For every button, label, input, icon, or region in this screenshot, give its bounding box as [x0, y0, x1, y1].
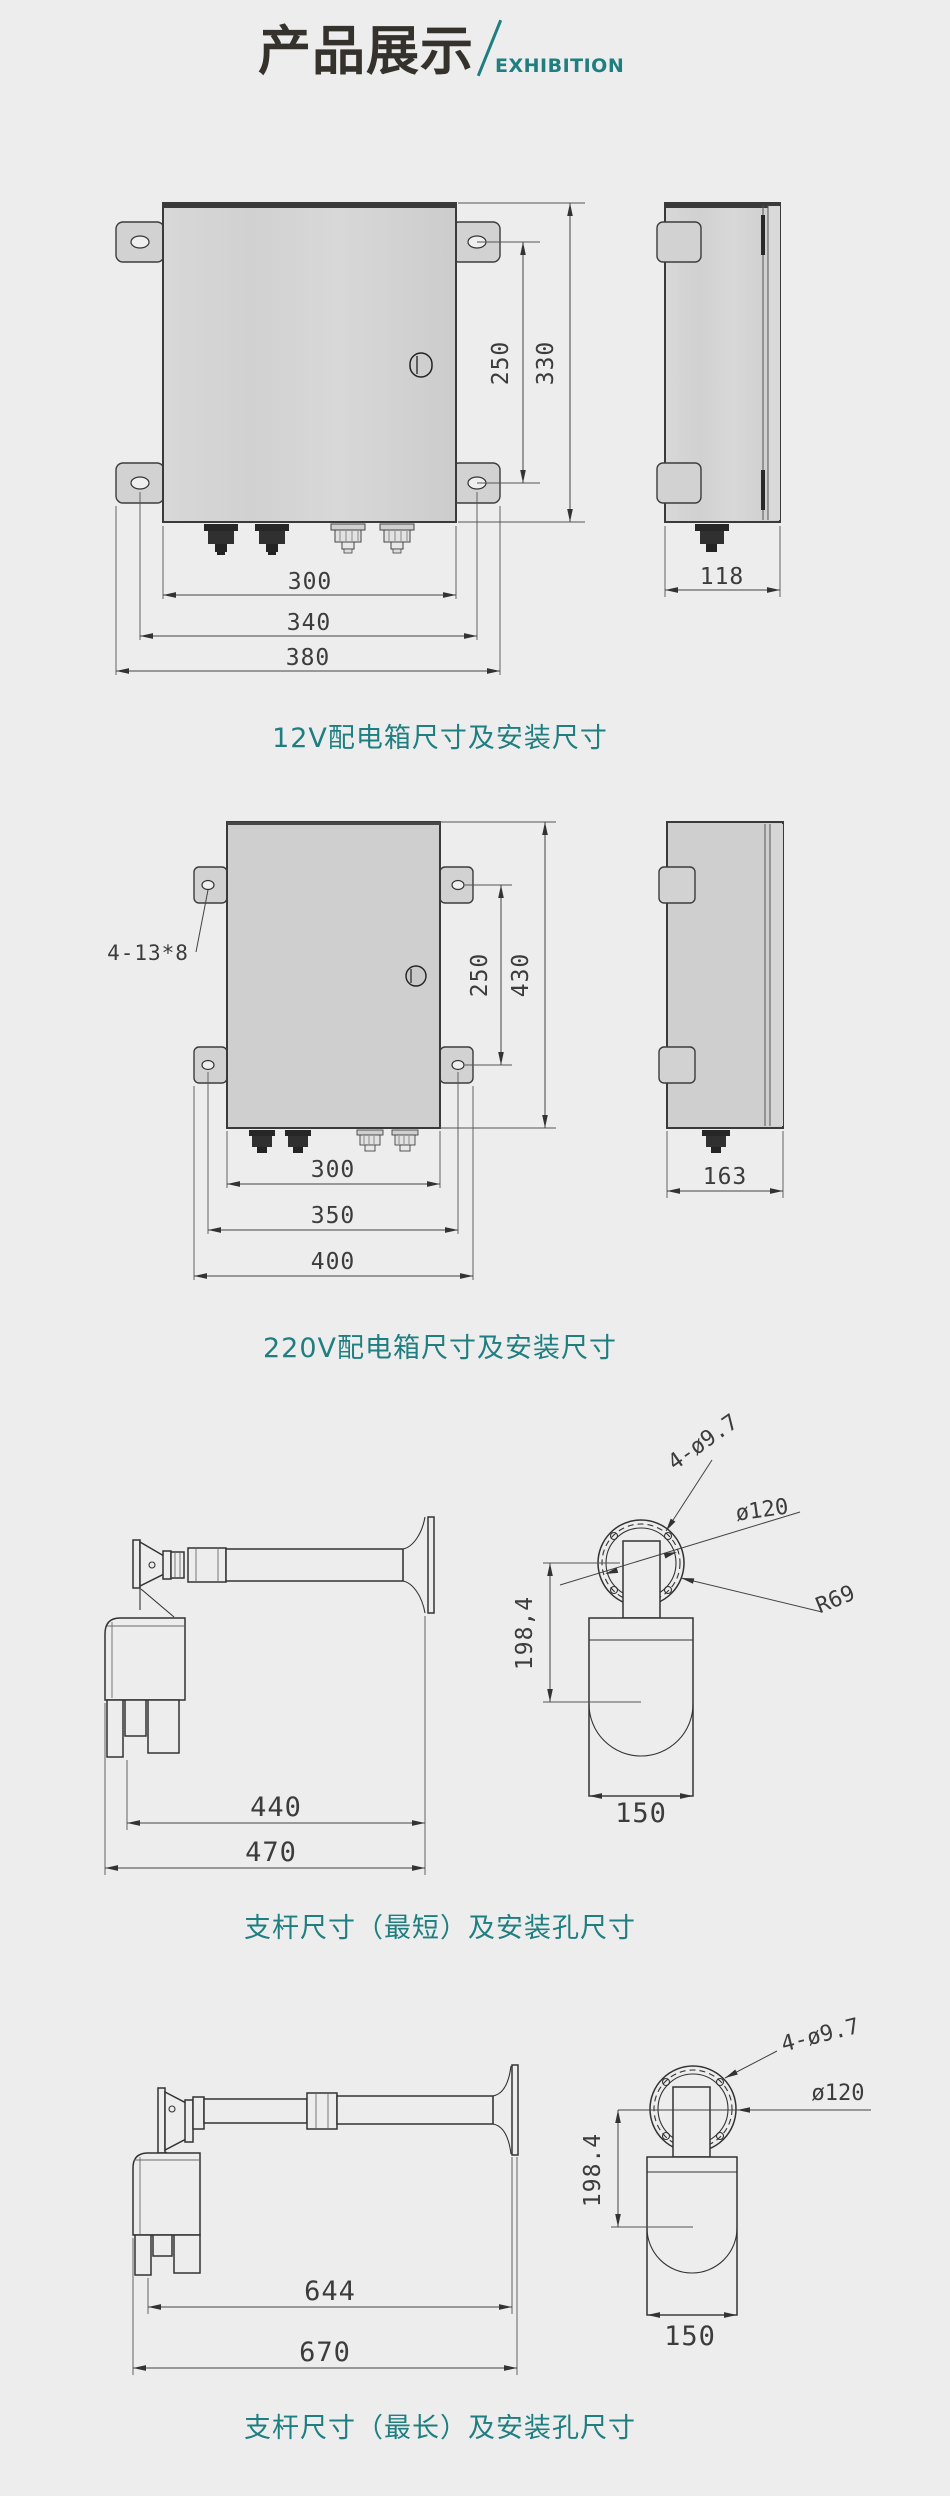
pole-connector [193, 2097, 204, 2129]
flange-slot [623, 1541, 660, 1618]
drawing-220v-box: 4-13*8 [0, 780, 950, 1300]
mounting-tab [657, 463, 701, 503]
bracket-collar [185, 2100, 193, 2142]
cable-gland-light [357, 1130, 383, 1151]
dim-350: 350 [311, 1203, 356, 1229]
housing-top-view [589, 1618, 693, 1796]
bracket-plate [158, 2088, 165, 2153]
wall-plate [428, 1517, 434, 1613]
dim-670: 670 [299, 2337, 351, 2368]
camera-housing [133, 2153, 200, 2235]
housing-leg [148, 1700, 179, 1753]
housing-leg [153, 2235, 172, 2256]
mount-hole-label: 4-13*8 [107, 941, 189, 965]
dim-198: 198.4 [580, 2133, 606, 2207]
caption-220v-box: 220V配电箱尺寸及安装尺寸 [40, 1326, 840, 1365]
label-flange-dia: ø120 [812, 2081, 865, 2106]
dim-250: 250 [488, 341, 514, 386]
pole-side-view-short: 440 470 [105, 1517, 434, 1875]
bracket-cone [140, 1542, 164, 1586]
door-panel [768, 206, 780, 520]
housing-leg [135, 2235, 151, 2275]
label-flange-dia: ø120 [734, 1494, 790, 1526]
dim-300: 300 [288, 569, 333, 595]
cable-gland-dark [285, 1130, 311, 1153]
mount-hole [202, 1061, 214, 1070]
housing-leg [125, 1700, 146, 1736]
cable-gland-dark [255, 524, 289, 555]
bracket-plate [133, 1540, 140, 1588]
page-title: 产品展示 [258, 24, 474, 80]
wall-flare [493, 2066, 511, 2096]
mount-hole [452, 881, 464, 890]
housing-top-view [647, 2157, 737, 2315]
page-header: 产品展示 EXHIBITION [258, 10, 624, 80]
gusset [141, 1589, 174, 1617]
housing-leg [174, 2235, 200, 2273]
page: 产品展示 EXHIBITION [0, 0, 950, 2496]
mounting-tab [659, 1047, 695, 1083]
dim-118: 118 [700, 564, 745, 590]
mount-hole [452, 1061, 464, 1070]
pole-tube-outer [337, 2096, 493, 2124]
lock-icon [410, 353, 432, 377]
dim-330: 330 [533, 341, 559, 386]
bracket-collar [163, 1551, 171, 1579]
caption-12v-box: 12V配电箱尺寸及安装尺寸 [40, 716, 840, 755]
wall-flare [403, 1517, 425, 1549]
dim-380: 380 [286, 645, 331, 671]
hinge [761, 470, 765, 510]
dim-198: 198,4 [512, 1596, 538, 1670]
page-subtitle: EXHIBITION [495, 55, 624, 77]
bracket-cone [165, 2092, 186, 2150]
dim-250: 250 [467, 953, 493, 998]
drawing-pole-long: 644 670 ø120 198.4 [0, 2000, 950, 2400]
mounting-tab [657, 222, 701, 262]
lock-icon [406, 966, 426, 986]
mount-hole [131, 236, 149, 248]
box-top-edge [227, 822, 440, 825]
box-top-edge [163, 203, 456, 208]
pole-tube-inner [204, 2099, 307, 2123]
mount-hole [131, 477, 149, 489]
cable-gland-dark [702, 1130, 730, 1153]
cable-gland-dark [249, 1130, 275, 1153]
pole-connector [171, 1552, 184, 1578]
drawing-pole-short: 440 470 198,4 150 [0, 1395, 950, 1895]
flange-view-short: 198,4 150 ø120 4-ø9.7 R69 [512, 1410, 859, 1829]
dim-163: 163 [703, 1164, 748, 1190]
dim-300: 300 [311, 1157, 356, 1183]
front-view-220v: 4-13*8 [107, 822, 473, 1153]
caption-pole-short: 支杆尺寸（最短）及安装孔尺寸 [40, 1906, 840, 1945]
dim-150: 150 [615, 1798, 667, 1829]
flange-view-long: ø120 198.4 4-ø9.7 150 [580, 2014, 871, 2352]
mounting-tab [659, 867, 695, 903]
dim-430: 430 [508, 953, 534, 998]
cable-gland-dark [204, 524, 238, 555]
flange-slot [673, 2087, 710, 2157]
front-view-12v [116, 203, 500, 555]
dim-340: 340 [287, 610, 332, 636]
door-panel [770, 824, 783, 1126]
pole-coupler [188, 1548, 226, 1582]
camera-housing [105, 1618, 185, 1700]
cable-gland-light [392, 1130, 418, 1151]
label-radius: R69 [812, 1581, 858, 1619]
label-mount-holes: 4-ø9.7 [779, 2014, 862, 2057]
pole-side-view-long: 644 670 [133, 2065, 518, 2375]
caption-pole-long: 支杆尺寸（最长）及安装孔尺寸 [40, 2406, 840, 2445]
cable-gland-light [331, 524, 365, 553]
dim-470: 470 [245, 1837, 297, 1868]
telescopic-clamp [307, 2093, 337, 2129]
cable-gland-light [380, 524, 414, 553]
dim-400: 400 [311, 1249, 356, 1275]
drawing-12v-box: 250 330 300 340 380 [0, 100, 950, 700]
cable-gland-dark [695, 524, 729, 552]
hinge [761, 215, 765, 255]
mount-hole [202, 881, 214, 890]
dim-440: 440 [250, 1792, 302, 1823]
wall-plate [512, 2065, 518, 2155]
label-mount-holes: 4-ø9.7 [664, 1410, 743, 1476]
side-view-12v: 118 [657, 203, 780, 597]
dim-150: 150 [664, 2321, 716, 2352]
side-view-220v: 163 [659, 822, 783, 1198]
housing-leg [107, 1700, 123, 1757]
dim-644: 644 [304, 2276, 356, 2307]
pole-tube [226, 1549, 403, 1581]
